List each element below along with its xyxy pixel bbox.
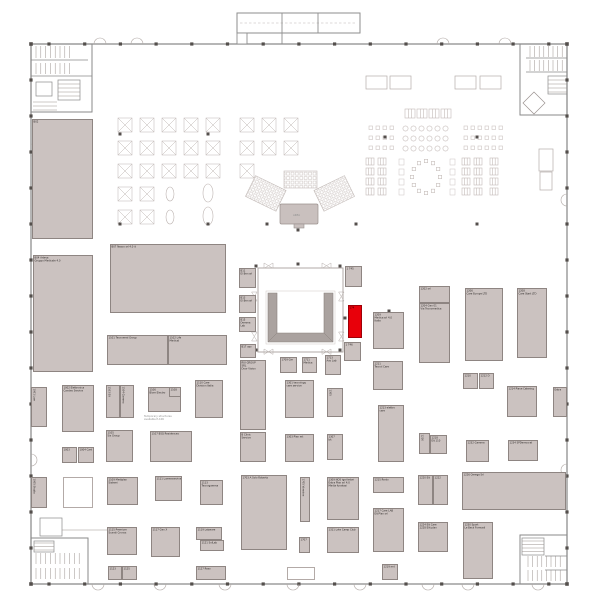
booth-1745[interactable]: 1 745 <box>345 266 362 287</box>
booth-1006[interactable] <box>63 477 93 508</box>
booth-label: 1107 BSQ Residences <box>151 432 192 436</box>
booth-label: 1232 Gamma <box>467 441 489 445</box>
booth-B07[interactable]: B07 Nasco srl 4.0 it <box>110 244 226 313</box>
booth-label: B02 <box>33 120 93 124</box>
booth-1232[interactable]: 1232 Gamma <box>466 440 489 462</box>
booth-label: B17 azo <box>241 345 256 349</box>
floor-plan: Temporary structuresavailable P-106AREA … <box>0 0 600 600</box>
booth-1703[interactable]: 1703 A Solo Roberts <box>241 475 287 550</box>
booth-1125[interactable]: 1125 <box>122 566 137 580</box>
booth-label: 1210 <box>464 374 478 378</box>
booth-1234[interactable]: 1234 SPDemocrat <box>508 440 538 461</box>
booth-label: B07 Nasco srl 4.0 it <box>111 245 226 249</box>
booth-1214[interactable]: 1214 Piave Catering <box>507 386 537 417</box>
booth-1707[interactable]: 1707 <box>299 537 310 553</box>
booth-1113[interactable]: 1113 Tecnogamma <box>200 480 223 505</box>
booth-label: B11 El Ben srl <box>240 269 256 276</box>
booth-label: B Clinic Service <box>241 433 266 440</box>
booth-B02[interactable]: B02 <box>32 119 93 239</box>
booth-label: 1115 Premium Scandi Cronos <box>108 528 137 535</box>
booth-label: B13 El Ben srl <box>240 296 256 303</box>
booth-label: Extra <box>554 388 567 392</box>
booth-1003[interactable]: 1003 <box>62 447 77 463</box>
booth-label: 1709 Gm <box>281 358 297 362</box>
booths-layer: B02B04 Arteva Gruppo Medicale 4.01001 Lu… <box>0 0 600 600</box>
booth-label: 1212 D <box>480 374 494 378</box>
booth-1216[interactable]: 1216 <box>419 433 430 454</box>
booth-1108[interactable]: 1108 <box>169 387 181 397</box>
booth-label: 1001 Lum <box>32 388 36 427</box>
booth-1715[interactable] <box>287 567 315 580</box>
booth-label: 1713 Axo Lab <box>326 356 341 363</box>
booth-label: 1214 Piave Catering <box>508 387 537 391</box>
booth-1219[interactable]: 1219 md <box>382 564 398 580</box>
booth-label: 1111 Lumenservice <box>156 477 182 481</box>
booth-label: 1219 md <box>383 565 398 569</box>
booth-1713[interactable]: 1713 Axo Lab <box>325 355 341 375</box>
booth-BCL[interactable]: B Clinic Service <box>240 432 266 462</box>
booth-label: 1125 <box>123 567 137 571</box>
booth-label: 1226 Omega Srl <box>463 473 566 477</box>
booth-1311[interactable]: 1311 Lote Camp Club <box>327 527 359 553</box>
booth-label: 1303 Plan mt <box>286 435 314 439</box>
booth-B04[interactable]: B04 Arteva Gruppo Medicale 4.0 <box>33 255 93 372</box>
booth-label: 1101 Tecnomed Group <box>108 336 168 340</box>
booth-1123[interactable]: 1123 <box>108 566 122 580</box>
booth-label: 1105 Six Group <box>107 431 133 438</box>
booth-label: 1 746 <box>345 343 361 347</box>
selected-booth[interactable]: 174 <box>348 305 362 338</box>
booth-label: 1211 Tecnol Care <box>374 362 403 369</box>
booth-label: 1104 Gamma <box>121 386 125 418</box>
booth-label: 1703 A Solo Roberts <box>242 476 287 480</box>
booth-1111[interactable]: 1111 Lumenservice <box>155 476 182 501</box>
booth-1746[interactable]: 1 746 <box>344 342 361 361</box>
booth-1305[interactable]: 1305 <box>327 388 343 417</box>
booth-1230[interactable]: 1230 Sport Le Beck Formadi <box>463 522 493 579</box>
booth-1004[interactable]: 1004 Cart <box>78 447 94 463</box>
booth-label: 1102 Life Medical <box>169 336 227 343</box>
booth-label: 1113 Tecnogamma <box>201 481 223 488</box>
booth-label: 1110 Care Division Italia <box>196 381 223 388</box>
booth-label: 1208 Care Start LTD <box>518 289 547 296</box>
booth-label: 1224 Elt Care 1228 Elit plan <box>419 523 448 530</box>
booth-1211[interactable]: 1211 Tecnol Care <box>373 361 403 390</box>
booth-label: 1311 Lote Camp Club <box>328 528 359 532</box>
booth-1209[interactable]: 1209 Medica srl 4.0 Italia <box>373 312 404 349</box>
booth-1206[interactable]: 1206 Care Europe LTD <box>465 288 503 361</box>
booth-label: 1109 Mediplan Sistemi <box>108 478 138 485</box>
booth-label: 1 745 <box>346 267 362 271</box>
booth-label: 1003 <box>63 448 77 452</box>
booth-EXT[interactable]: Extra <box>553 387 567 417</box>
booth-1208[interactable]: 1208 Care Start LTD <box>517 288 547 358</box>
booth-label: B15 Demma Lab <box>240 318 256 328</box>
booth-label: 1123 <box>109 567 122 571</box>
booth-label: 1705 Varesine <box>301 478 305 522</box>
booth-1301[interactable]: 1301 tecnology care service <box>285 380 314 418</box>
booth-1220[interactable]: 1220 Elt <box>418 475 433 505</box>
booth-label: 174 <box>349 306 362 310</box>
booth-1001[interactable]: 1001 Lum <box>31 387 47 427</box>
booth-label: 1002 Elettronica Candeo Service <box>63 386 94 393</box>
booth-label: 1307 bk <box>328 435 343 442</box>
booth-label: 1218 Elt 110 <box>431 436 447 443</box>
booth-1224[interactable]: 1224 Elt Care 1228 Elit plan <box>418 522 448 552</box>
booth-label: 1121 SolLab <box>201 541 224 545</box>
booth-label: 1127 Rexo <box>197 567 226 571</box>
booth-1101[interactable]: 1101 Tecnomed Group <box>107 335 168 365</box>
booth-1117[interactable]: 1117 Gen X <box>151 527 180 557</box>
booth-1705[interactable]: 1705 Varesine <box>300 477 310 522</box>
booth-1127[interactable]: 1127 Rexo <box>196 566 226 580</box>
booth-1103[interactable]: 1103 Elt <box>106 385 120 418</box>
booth-1202[interactable]: 1202 srl <box>419 286 450 303</box>
booth-B15[interactable]: B15 Demma Lab <box>239 317 256 332</box>
booth-label: 1711 Medica <box>303 358 317 365</box>
booth-1226[interactable]: 1226 Omega Srl <box>462 472 566 510</box>
booth-label: 1220 Elt <box>419 476 433 480</box>
booth-1217[interactable]: 1217 Care LAB Elt Plan srl <box>373 508 404 552</box>
booth-B11[interactable]: B11 El Ben srl <box>239 268 256 288</box>
booth-RIU[interactable]: RIU GROUP SRL Door Vision <box>240 360 266 430</box>
booth-label: 1234 SPDemocrat <box>509 441 538 445</box>
booth-1115[interactable]: 1115 Premium Scandi Cronos <box>107 527 137 555</box>
booth-1709[interactable]: 1709 Gm <box>280 357 297 373</box>
booth-label: 1707 <box>300 538 310 542</box>
booth-label: 1204 Gen 01 Via Tecnomedica <box>420 304 450 311</box>
booth-label: 1215 Renlo <box>374 478 404 482</box>
booth-1215[interactable]: 1215 Renlo <box>373 477 404 493</box>
booth-B17[interactable]: B17 azo <box>240 344 256 358</box>
booth-1110[interactable]: 1110 Care Division Italia <box>195 380 223 418</box>
booth-label: 1213 elettro care <box>379 406 404 413</box>
booth-label: 1005 Studio <box>32 478 36 508</box>
booth-label: 1222 <box>434 476 448 480</box>
booth-label: 1202 srl <box>420 287 450 291</box>
booth-label: 1216 <box>420 434 424 454</box>
booth-1210[interactable]: 1210 <box>463 373 478 389</box>
booth-label: 1309 NOS iga fartori Extra Plan srl 4.0 … <box>328 478 359 488</box>
booth-label: RIU GROUP SRL Door Vision <box>241 361 266 371</box>
booth-1109[interactable]: 1109 Mediplan Sistemi <box>107 477 138 505</box>
booth-1218[interactable]: 1218 Elt 110 <box>430 435 447 454</box>
booth-label: 1206 Care Europe LTD <box>466 289 503 296</box>
booth-label: 1108 <box>170 388 181 392</box>
booth-1121[interactable]: 1121 SolLab <box>200 540 224 551</box>
booth-label: 1305 <box>328 389 332 417</box>
booth-1222[interactable]: 1222 <box>433 475 448 505</box>
booth-B13[interactable]: B13 El Ben srl <box>239 295 256 313</box>
booth-label: 1103 Elt <box>107 386 111 418</box>
booth-1204[interactable]: 1204 Gen 01 Via Tecnomedica <box>419 303 450 363</box>
booth-1107[interactable]: 1107 BSQ Residences <box>150 431 192 462</box>
booth-1213[interactable]: 1213 elettro care <box>378 405 404 462</box>
booth-label: B04 Arteva Gruppo Medicale 4.0 <box>34 256 93 263</box>
booth-1005[interactable]: 1005 Studio <box>31 477 47 508</box>
booth-label: 1119 Labware <box>197 528 222 532</box>
booth-1119[interactable]: 1119 Labware <box>196 527 222 540</box>
booth-1711[interactable]: 1711 Medica <box>302 357 317 373</box>
booth-1105[interactable]: 1105 Six Group <box>106 430 133 462</box>
booth-1307[interactable]: 1307 bk <box>327 434 343 460</box>
booth-label: 1217 Care LAB Elt Plan srl <box>374 509 404 516</box>
booth-1309[interactable]: 1309 NOS iga fartori Extra Plan srl 4.0 … <box>327 477 359 520</box>
booth-1303[interactable]: 1303 Plan mt <box>285 434 314 462</box>
booth-label: 1301 tecnology care service <box>286 381 314 388</box>
booth-label: 1004 Cart <box>79 448 94 452</box>
booth-1102[interactable]: 1102 Life Medical <box>168 335 227 365</box>
booth-label: 1209 Medica srl 4.0 Italia <box>374 313 404 323</box>
booth-1002[interactable]: 1002 Elettronica Candeo Service <box>62 385 94 432</box>
booth-1212[interactable]: 1212 D <box>479 373 494 389</box>
booth-1104[interactable]: 1104 Gamma <box>120 385 134 418</box>
booth-label: 1117 Gen X <box>152 528 180 532</box>
booth-label: 1230 Sport Le Beck Formadi <box>464 523 493 530</box>
